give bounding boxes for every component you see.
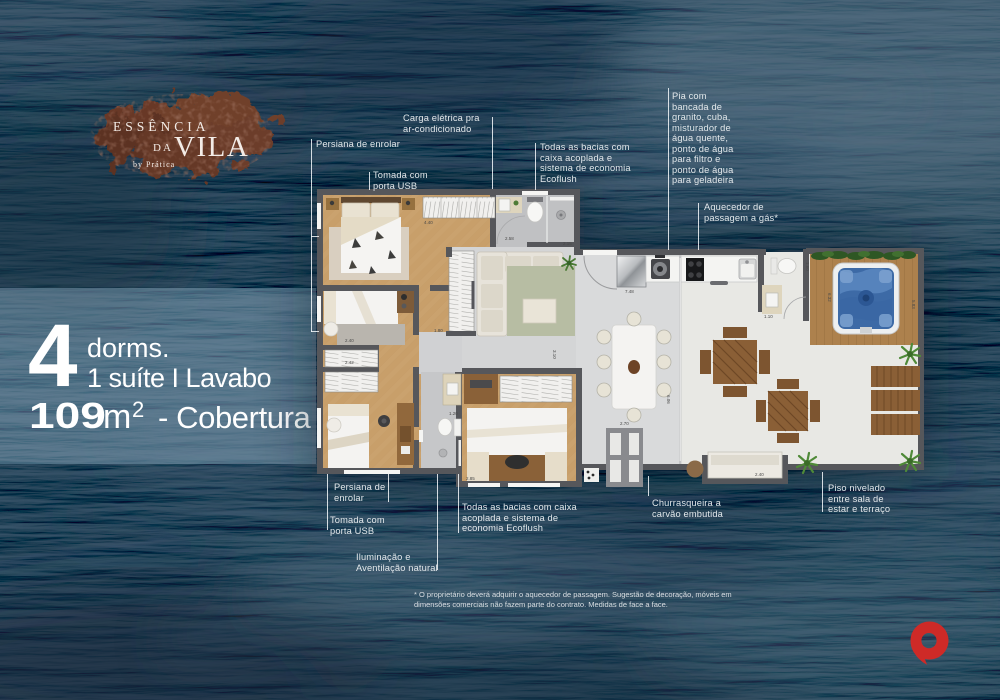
svg-text:7.48: 7.48 (625, 289, 634, 294)
svg-text:2.40: 2.40 (345, 338, 354, 343)
svg-text:3.10: 3.10 (552, 350, 557, 359)
svg-text:1.60: 1.60 (805, 262, 810, 271)
svg-text:4.40: 4.40 (424, 220, 433, 225)
svg-text:2.15: 2.15 (563, 241, 572, 246)
svg-text:2.85: 2.85 (466, 476, 475, 481)
svg-text:2.70: 2.70 (620, 421, 629, 426)
svg-text:2.40: 2.40 (755, 472, 764, 477)
svg-text:2.42: 2.42 (345, 360, 354, 365)
svg-text:5.83: 5.83 (911, 300, 916, 309)
svg-text:6.06: 6.06 (666, 395, 671, 404)
svg-text:1.80: 1.80 (434, 328, 443, 333)
svg-text:2.58: 2.58 (505, 236, 514, 241)
svg-text:1.20: 1.20 (449, 411, 458, 416)
svg-text:6.32: 6.32 (827, 293, 832, 302)
svg-text:1.10: 1.10 (764, 314, 773, 319)
